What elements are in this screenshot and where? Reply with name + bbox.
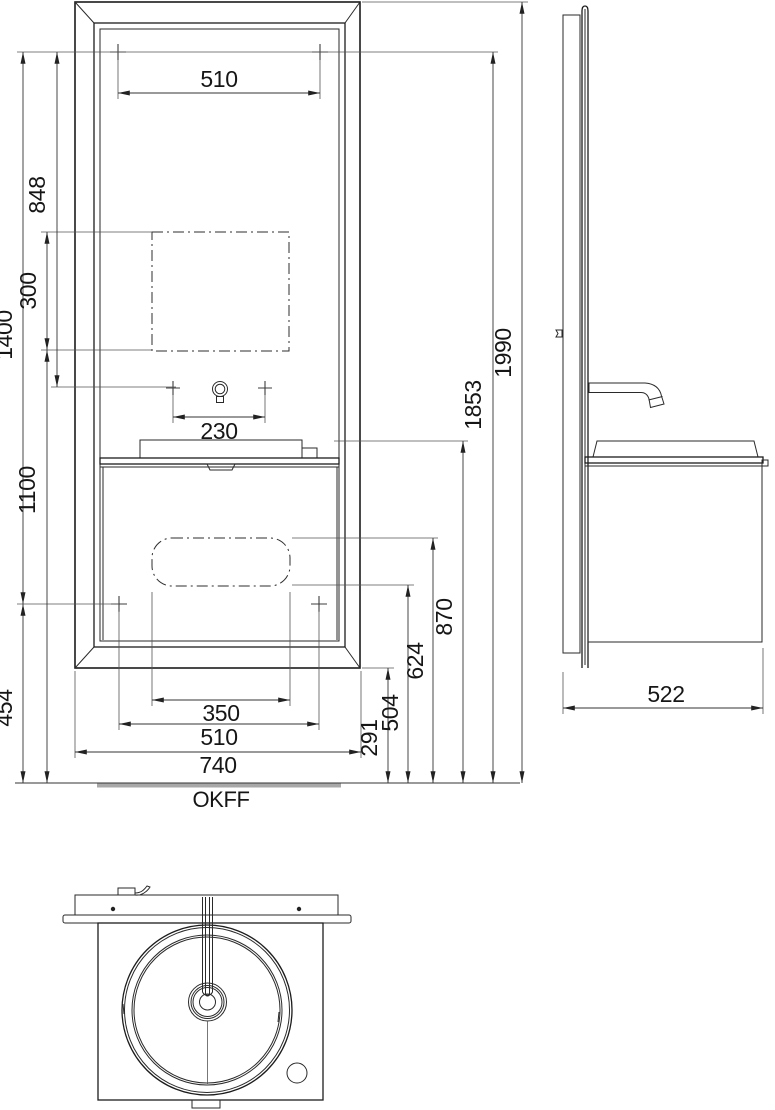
rail-screw-left: [111, 907, 115, 911]
dim-lower-fixing-width: 510: [200, 724, 237, 750]
bowl-overflow-notch-left: [123, 1004, 124, 1014]
pipe-inner: [206, 897, 210, 996]
plan-view: [63, 886, 351, 1108]
drain-ring-2: [191, 986, 224, 1019]
extension-lines: [17, 2, 763, 758]
frame-flange-plan: [63, 915, 351, 923]
frame-miter-joints: [75, 2, 360, 668]
mirror-cutout: [152, 232, 289, 351]
faucet-front: [213, 382, 228, 403]
cabinet-service-cutout: [152, 538, 290, 586]
frame-inner: [100, 29, 339, 641]
dim-cutout-bottom-height: 1100: [14, 466, 40, 514]
dim-hanger-to-faucet: 848: [24, 176, 50, 213]
dim-frame-top-height: 1990: [490, 328, 516, 378]
cabinet-side: [588, 466, 762, 642]
frame-mid: [94, 23, 345, 647]
dim-service-cutout-bottom: 504: [377, 694, 403, 732]
dim-frame-width: 740: [199, 752, 236, 778]
wall-rail-plan: [75, 895, 338, 915]
pipe-outer: [203, 897, 213, 995]
cabinet-front: [103, 467, 337, 640]
latch-plate: [118, 888, 135, 895]
dim-lower-fixing-height: 454: [0, 689, 17, 727]
dim-service-cutout-width: 350: [202, 700, 239, 726]
drain-ring-1: [189, 983, 227, 1021]
dim-service-cutout-top: 624: [402, 642, 428, 680]
front-view: [75, 2, 360, 668]
dimensions: 510 230 350 510 740 522 1400 454 848 300…: [0, 2, 763, 783]
faucet-fixing-crosses: [166, 381, 272, 395]
basin-side-box: [302, 448, 317, 458]
dim-mirror-hanger-width: 510: [200, 66, 237, 92]
basin-side: [593, 441, 758, 457]
faucet-spout-inner: [215, 384, 225, 394]
lower-fixing-crosses: [111, 596, 327, 612]
washbasin-installation-drawing: 510 230 350 510 740 522 1400 454 848 300…: [0, 0, 775, 1110]
dim-worktop-height: 870: [431, 598, 457, 635]
drain-plan: [189, 983, 227, 1021]
latch-hook: [135, 886, 150, 895]
accessory-hole-plan: [287, 1063, 307, 1083]
dim-mirror-cutout-height: 300: [15, 272, 41, 309]
floor-reference: OKFF: [15, 783, 520, 812]
drain-ring-3: [193, 988, 222, 1017]
wall-bracket-hook: [556, 330, 562, 337]
faucet-tip-joint: [649, 397, 663, 401]
side-view: [556, 6, 768, 668]
dim-fixing-chain-height: 1400: [0, 310, 17, 360]
rail-screw-right: [297, 907, 301, 911]
faucet-side: [589, 383, 664, 408]
technical-drawing-sheet: 510 230 350 510 740 522 1400 454 848 300…: [0, 0, 775, 1110]
frame-outer: [75, 2, 360, 668]
dim-unit-depth: 522: [647, 681, 684, 707]
worktop-slab: [100, 458, 339, 464]
faucet-pipe-plan: [203, 897, 213, 996]
dim-faucet-hole-spacing: 230: [200, 418, 237, 444]
recess-box-side: [563, 15, 580, 653]
floor-reference-label: OKFF: [192, 787, 249, 812]
washbasin-front: [100, 440, 339, 470]
faucet-nozzle: [217, 397, 224, 403]
dim-upper-fixing-height: 1853: [460, 380, 486, 430]
worktop-slab-side: [585, 457, 763, 463]
drain-outlet-tab: [192, 1100, 220, 1108]
ext-cutout-width: [152, 592, 290, 706]
